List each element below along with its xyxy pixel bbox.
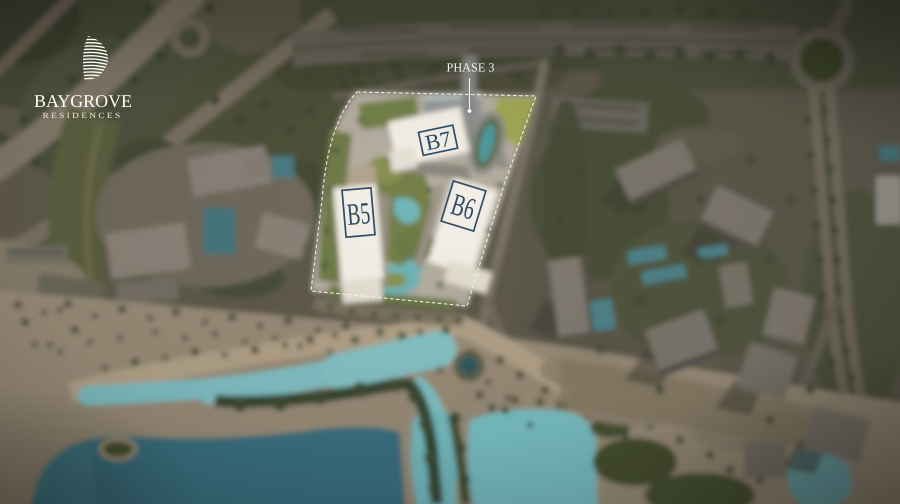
svg-text:B5: B5 xyxy=(346,195,372,232)
svg-text:BAYGROVE: BAYGROVE xyxy=(34,91,132,111)
svg-text:PHASE 3: PHASE 3 xyxy=(447,61,495,75)
svg-text:RESIDENCES: RESIDENCES xyxy=(43,111,123,120)
svg-text:B7: B7 xyxy=(423,126,453,156)
